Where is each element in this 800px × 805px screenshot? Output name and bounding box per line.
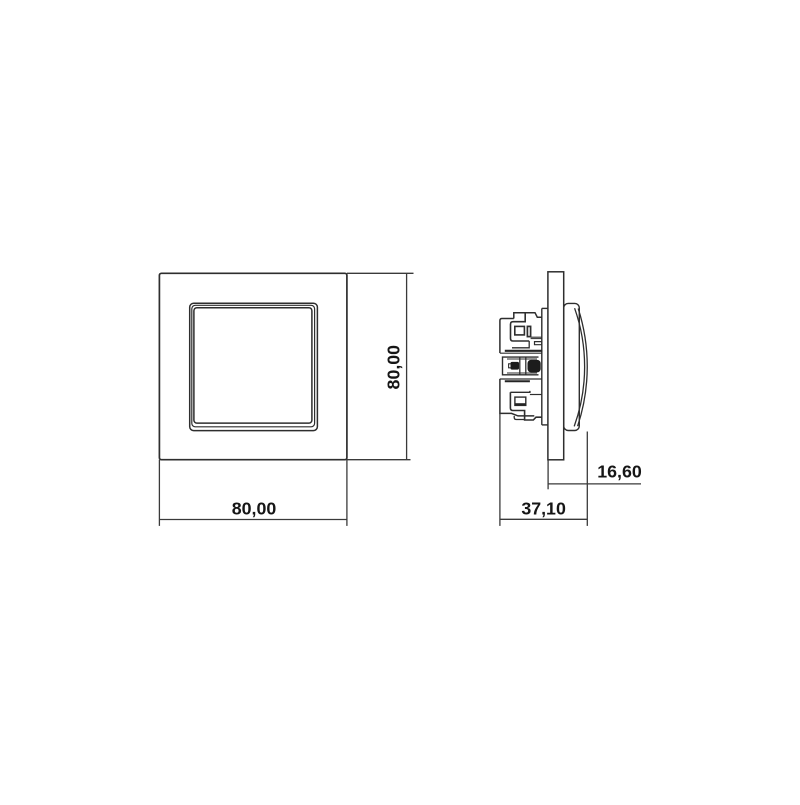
svg-text:37,10: 37,10 [521, 499, 566, 519]
svg-text:80,00: 80,00 [232, 499, 277, 519]
svg-text:16,60: 16,60 [597, 462, 642, 482]
svg-text:80,00: 80,00 [383, 345, 403, 390]
